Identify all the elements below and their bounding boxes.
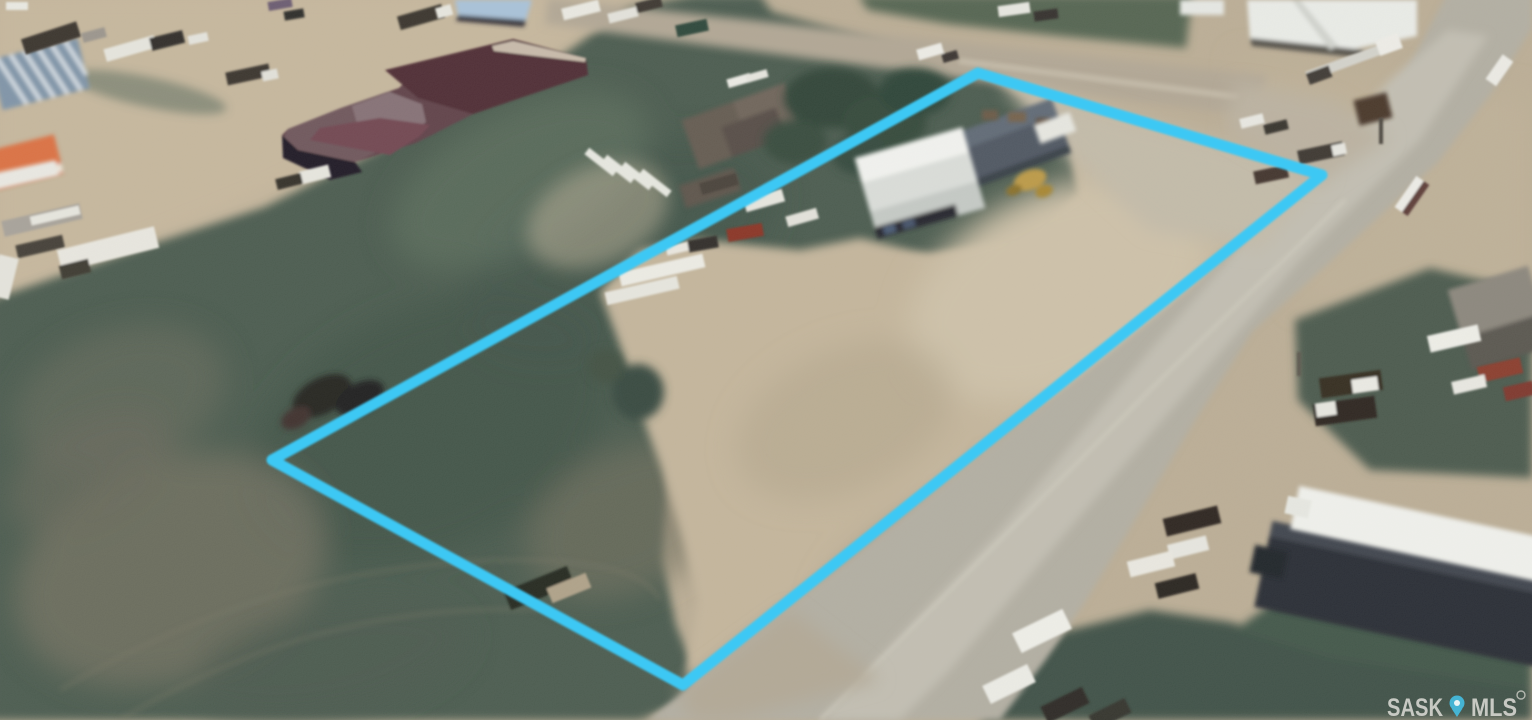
svg-text:MLS: MLS [1471,694,1517,720]
svg-text:SASK: SASK [1387,694,1443,720]
